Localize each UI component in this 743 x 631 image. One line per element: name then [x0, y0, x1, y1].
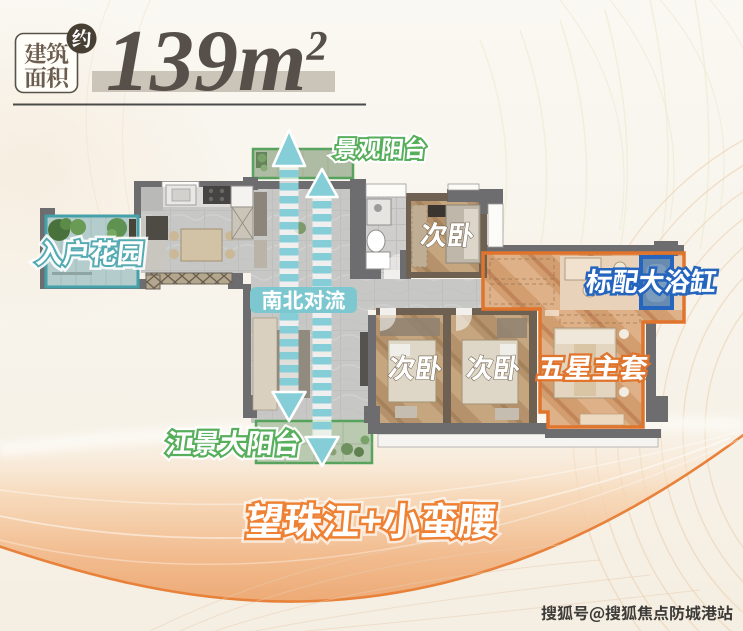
svg-text:次卧: 次卧: [464, 347, 523, 386]
svg-text:约: 约: [72, 23, 92, 52]
svg-text:江景大阳台: 江景大阳台: [163, 422, 303, 461]
svg-text:望珠江+小蛮腰: 望珠江+小蛮腰: [244, 491, 499, 546]
svg-text:139m2: 139m2: [106, 13, 327, 110]
svg-text:入户花园: 入户花园: [34, 232, 146, 271]
svg-text:南北对流: 南北对流: [262, 285, 346, 315]
svg-text:次卧: 次卧: [418, 214, 477, 253]
svg-text:次卧: 次卧: [386, 347, 445, 386]
svg-text:标配大浴缸: 标配大浴缸: [584, 261, 719, 299]
svg-text:面积: 面积: [24, 60, 71, 93]
svg-text:搜狐号@搜狐焦点防城港站: 搜狐号@搜狐焦点防城港站: [541, 600, 733, 624]
svg-text:景观阳台: 景观阳台: [333, 130, 429, 164]
svg-text:五星主套: 五星主套: [535, 346, 651, 386]
